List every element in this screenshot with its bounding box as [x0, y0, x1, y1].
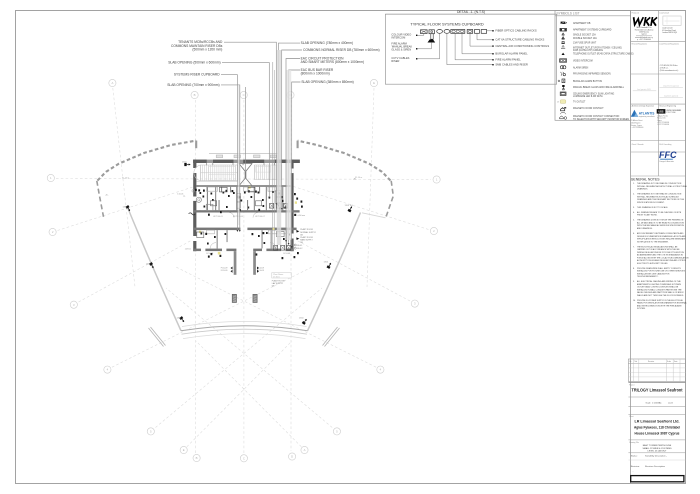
- svg-text:FIBER OPTICS CABLING RACKS: FIBER OPTICS CABLING RACKS: [495, 29, 536, 33]
- svg-text:(800mm x 1000mm): (800mm x 1000mm): [301, 72, 330, 76]
- svg-text:ANY DISCREPANCY BETWEEN CONSUL: ANY DISCREPANCY BETWEEN CONSULTANTS AND: [637, 232, 684, 235]
- svg-text:SLAB OPENING (500mm x 600mm): SLAB OPENING (500mm x 600mm): [168, 61, 220, 65]
- svg-text:THE DRAWING DOES NOT SHOW THE: THE DRAWING DOES NOT SHOW THE FINISHED I…: [637, 219, 684, 222]
- svg-text:LIFT B0.07: LIFT B0.07: [255, 216, 266, 218]
- svg-text:WITH ALL RELEVANT ELECTRICAL S: WITH ALL RELEVANT ELECTRICAL SCHEDULE: [637, 195, 680, 198]
- svg-text:PANEL FOR VENTILATOR MECHANISM: PANEL FOR VENTILATOR MECHANISM FOR EXTER…: [637, 302, 687, 305]
- svg-text:Client / Sharook: Client / Sharook: [632, 143, 644, 146]
- svg-text:GENERAL NOTES: GENERAL NOTES: [631, 177, 660, 181]
- svg-text:INSTALLATIONS LIKE CABLING FOR: INSTALLATIONS LIKE CABLING FOR: [637, 272, 670, 275]
- svg-text:TRILOGY Limassol Seafront: TRILOGY Limassol Seafront: [632, 387, 683, 392]
- svg-text:THE ELECTRICAL INSTALLATIONS S: THE ELECTRICAL INSTALLATIONS SHALL BE: [637, 245, 678, 248]
- svg-text:AS AMENDMENT AND THE CYS EN ST: AS AMENDMENT AND THE CYS EN STANDARDS IN: [637, 254, 683, 257]
- svg-text:C: C: [243, 456, 245, 460]
- svg-text:GLASS & SIREN: GLASS & SIREN: [391, 48, 411, 52]
- svg-text:ALL DIMENSIONS ARE TO BE CHECK: ALL DIMENSIONS ARE TO BE CHECKED ON SITE: [637, 211, 682, 214]
- svg-text:DRAWINGS AND THE RELEVANT SECT: DRAWINGS AND THE RELEVANT SECTIONS OF TH…: [637, 198, 685, 201]
- svg-text:VIDEO INTERCOM: VIDEO INTERCOM: [573, 61, 593, 63]
- svg-text:SLAB OPENING (380mm x 850mm): SLAB OPENING (380mm x 850mm): [301, 80, 353, 84]
- svg-text:Cyprus: Cyprus: [641, 32, 647, 35]
- svg-text:SLAB OPENING (780mm x 400mm): SLAB OPENING (780mm x 400mm): [301, 41, 353, 45]
- svg-text:COMMONS NORMAL RISER DB (780mm: COMMONS NORMAL RISER DB (780mm x 600mm): [303, 48, 379, 52]
- svg-text:A: A: [304, 448, 306, 452]
- svg-text:LR Limassol Seafront Ltd.: LR Limassol Seafront Ltd.: [635, 420, 680, 424]
- svg-text:p. +357 22000000: p. +357 22000000: [637, 39, 651, 41]
- svg-text:LIFT B0.05: LIFT B0.05: [213, 216, 224, 218]
- svg-text:PROVIDE 3G POWER SUPPLY IN THE: PROVIDE 3G POWER SUPPLY IN THE ELECTRICA…: [637, 299, 683, 302]
- svg-text:THE DRAWING IS TO BE READ IN C: THE DRAWING IS TO BE READ IN CONJUNCTION: [637, 182, 682, 185]
- svg-text:BURGLAR ALARM PANEL: BURGLAR ALARM PANEL: [495, 52, 528, 56]
- svg-text:PLANT ROOM: PLANT ROOM: [272, 280, 285, 283]
- svg-text:Architect & Design Supervisor: Architect & Design Supervisor: [632, 105, 655, 108]
- svg-text:OUTLETS AND CONTROL DEVICES SH: OUTLETS AND CONTROL DEVICES SHALL BE: [637, 286, 679, 289]
- svg-text:WALLS AND NOT THROUGH THE FLOO: WALLS AND NOT THROUGH THE FLOOR SCREEDS.: [637, 294, 684, 297]
- svg-text:DB-4.2: DB-4.2: [297, 248, 303, 250]
- svg-text:WKK Limited & Co: WKK Limited & Co: [637, 26, 652, 29]
- svg-text:THE DRAWING IS TO BE READ IN C: THE DRAWING IS TO BE READ IN CONJUNCTION: [637, 193, 682, 196]
- svg-text:PLANT ROOM: PLANT ROOM: [300, 236, 313, 239]
- svg-text:AUTHORITY RULES AND REGULATION: AUTHORITY RULES AND REGULATIONS AND CYPR…: [637, 259, 687, 262]
- svg-text:E: E: [183, 448, 185, 452]
- svg-text:RISER: RISER: [391, 59, 399, 63]
- svg-text:SMB CABLES AND RISER: SMB CABLES AND RISER: [495, 63, 527, 67]
- svg-text:SMALL POWER & SYSTEMS: SMALL POWER & SYSTEMS: [642, 447, 672, 450]
- svg-text:London NW10 8QE: London NW10 8QE: [662, 32, 678, 34]
- svg-text:TV OUTLET: TV OUTLET: [573, 101, 586, 103]
- svg-text:FIRE ALARM PANEL: FIRE ALARM PANEL: [495, 58, 521, 62]
- svg-text:Agias Fylaxeos, 118 Christabel: Agias Fylaxeos, 118 Christabel: [634, 426, 680, 430]
- svg-text:SLAB OPENING (700mm x 900mm): SLAB OPENING (700mm x 900mm): [167, 83, 219, 87]
- svg-text:B: B: [194, 93, 196, 97]
- svg-text:M+E Consulting: M+E Consulting: [659, 143, 671, 146]
- svg-text:Project: Project: [629, 384, 635, 387]
- svg-text:Lead konsult: Lead konsult: [659, 11, 669, 14]
- svg-text:FCU-09: FCU-09: [221, 267, 228, 269]
- svg-text:-5-: -5-: [183, 196, 186, 198]
- svg-text:INTERNET OUTLET (FOR KITCHEN /: INTERNET OUTLET (FOR KITCHEN / CEILING): [573, 47, 622, 49]
- svg-text:TELEPHONE OUTLET (RJ45 CAT6A S: TELEPHONE OUTLET (RJ45 CAT6A STRUCTURE C…: [573, 53, 634, 56]
- svg-text:LUMINAIRE LED 8.4W 347lm: LUMINAIRE LED 8.4W 347lm: [573, 95, 603, 98]
- svg-text:INSTALLED IN WALL CONDUITS PAR: INSTALLED IN WALL CONDUITS PARTITIONS TH…: [637, 288, 682, 291]
- svg-text:Revision Description: Revision Description: [645, 465, 666, 468]
- svg-text:47.36 m: 47.36 m: [273, 276, 280, 278]
- svg-text:RJ45 (CAT6A UTP) CABLING: RJ45 (CAT6A UTP) CABLING: [573, 49, 603, 52]
- svg-text:SYSTEM.: SYSTEM.: [637, 308, 646, 310]
- svg-text:Drawing Title: Drawing Title: [629, 441, 639, 444]
- svg-text:ALL ELECTRICAL CABLING AND WIR: ALL ELECTRICAL CABLING AND WIRING OF THE: [637, 280, 681, 283]
- svg-text:WIRING REGULATIONS BS 7671 200: WIRING REGULATIONS BS 7671 2008 17TH EDI…: [637, 251, 684, 254]
- svg-text:FFC: FFC: [659, 150, 677, 160]
- svg-text:1.49.01: 1.49.01: [185, 248, 191, 250]
- svg-text:DRAWINGS.: DRAWINGS.: [637, 188, 648, 191]
- svg-text:Revision: Revision: [648, 361, 654, 363]
- svg-text:MANUAL BREAK GLASS AND FIRE AL: MANUAL BREAK GLASS AND FIRE ALARM BELL: [573, 86, 625, 89]
- svg-text:(16th amendments etc): (16th amendments etc): [660, 69, 679, 72]
- svg-text:LEVEL 26 LAYOUT: LEVEL 26 LAYOUT: [648, 450, 668, 453]
- svg-text:DETAIL -1- (N.T.S): DETAIL -1- (N.T.S): [457, 10, 485, 14]
- svg-text:PRIOR TO ANY WORK.: PRIOR TO ANY WORK.: [637, 214, 658, 217]
- svg-text:A: A: [111, 81, 113, 85]
- svg-text:-30-: -30-: [105, 195, 109, 197]
- svg-text:UNITED DESIGNERS: UNITED DESIGNERS: [666, 110, 681, 112]
- svg-text:Scale: Scale: [667, 361, 671, 363]
- svg-text:Revision:: Revision:: [631, 466, 640, 468]
- svg-text:final permits 2019: final permits 2019: [637, 88, 650, 91]
- svg-text:WITH ALL RELEVANT ARCHITECTURA: WITH ALL RELEVANT ARCHITECTURAL & STRUCT…: [637, 185, 687, 188]
- svg-text:AND DRAWINGS.: AND DRAWINGS.: [637, 227, 653, 230]
- svg-text:Revised Regulations: Revised Regulations: [632, 43, 648, 46]
- svg-text:ALARM SIREN: ALARM SIREN: [573, 66, 589, 69]
- svg-text:UDS: UDS: [658, 110, 663, 113]
- svg-text:Suitability description -: Suitability description -: [645, 455, 667, 458]
- svg-text:Scale: Scale: [646, 403, 652, 405]
- svg-text:C: C: [243, 93, 245, 97]
- svg-text:1:125@A1: 1:125@A1: [652, 402, 662, 405]
- svg-text:EAST TOWER PENTHOUSE: EAST TOWER PENTHOUSE: [643, 444, 672, 447]
- svg-text:PROVIDE DRAW WIRE IN ALL EMPTY: PROVIDE DRAW WIRE IN ALL EMPTY CONDUITS: [637, 267, 681, 270]
- svg-text:FCU-09: FCU-09: [221, 270, 228, 272]
- svg-text:Lead Revised Regulations: Lead Revised Regulations: [659, 43, 679, 46]
- svg-text:(500mm x 1200 mm): (500mm x 1200 mm): [192, 48, 222, 52]
- svg-text:Nicosia, Cyprus: Nicosia, Cyprus: [631, 125, 642, 127]
- svg-text:13A FUSE SPUR UNIT: 13A FUSE SPUR UNIT: [573, 42, 597, 45]
- svg-text:DOUBLE SOCKET 13A: DOUBLE SOCKET 13A: [573, 37, 597, 40]
- svg-text:E: E: [373, 81, 375, 85]
- svg-text:AND SMART METERS (800mm x 1000: AND SMART METERS (800mm x 1000mm): [301, 60, 364, 64]
- svg-text:SINGLE SOCKET 13A: SINGLE SOCKET 13A: [573, 33, 596, 36]
- svg-text:APARTMENT SYSTEMS CUPBOARD: APARTMENT SYSTEMS CUPBOARD: [573, 29, 612, 32]
- svg-text:≥150 mm: ≥150 mm: [298, 214, 306, 217]
- svg-text:PLANT ROOM: PLANT ROOM: [300, 228, 313, 231]
- svg-text:APARTMENTS LIGHTING POWER AND: APARTMENTS LIGHTING POWER AND SYSTEMS: [637, 283, 682, 286]
- svg-text:SYSTEMS RISER CUPBOARD: SYSTEMS RISER CUPBOARD: [174, 73, 220, 77]
- svg-text:Client: Client: [629, 415, 634, 418]
- svg-text:NORMAL SUPPLY: NORMAL SUPPLY: [300, 231, 317, 234]
- svg-text:31.10 m: 31.10 m: [122, 177, 130, 179]
- svg-text:APARTMENT DB: APARTMENT DB: [573, 22, 591, 25]
- svg-text:LAV SUPPLY: LAV SUPPLY: [272, 282, 284, 285]
- svg-text:D: D: [291, 455, 293, 459]
- svg-text:Structural Engineering: Structural Engineering: [659, 105, 676, 108]
- svg-text:TO SELECTION WITH SECURITY MON: TO SELECTION WITH SECURITY MONITOR SCREE…: [573, 119, 629, 121]
- svg-text:House Limassol 3087 Cyprus: House Limassol 3087 Cyprus: [635, 431, 680, 435]
- svg-text:THIS DRAWING IS NOT TO SCALE.: THIS DRAWING IS NOT TO SCALE.: [637, 206, 668, 209]
- svg-text:TYPICAL FLOOR SYSTEMS CUPBOARD: TYPICAL FLOOR SYSTEMS CUPBOARD: [410, 21, 484, 26]
- svg-text:CAT 6A STRUCTURE CABLING RACKS: CAT 6A STRUCTURE CABLING RACKS: [495, 38, 544, 42]
- svg-text:f. +357 22 000000: f. +357 22 000000: [657, 124, 669, 126]
- svg-text:ELECTRICITY AUTHORITY RULES.: ELECTRICITY AUTHORITY RULES.: [637, 262, 668, 265]
- svg-text:SPECIFICATIONS DOCUMENT.: SPECIFICATIONS DOCUMENT.: [637, 201, 665, 204]
- svg-text:Status:: Status:: [631, 455, 638, 458]
- svg-text:FALSE CEILINGS AND PARTITION W: FALSE CEILINGS AND PARTITION WALLS OR BR…: [637, 291, 684, 294]
- svg-text:CEILING EMERGENCY SLIM LIGHTIN: CEILING EMERGENCY SLIM LIGHTING: [573, 94, 614, 96]
- svg-text:INTERCOM: INTERCOM: [391, 36, 405, 40]
- svg-text:WITH THE MECHANICAL SERVICES S: WITH THE MECHANICAL SERVICES SPECIFICATI…: [637, 224, 685, 227]
- svg-text:Produced: Produced: [632, 11, 639, 14]
- svg-text:department approval: department approval: [663, 84, 679, 87]
- svg-text:No: No: [629, 361, 631, 363]
- svg-text:ATLANTIS: ATLANTIS: [639, 112, 655, 116]
- svg-text:2404 Engomi: 2404 Engomi: [631, 122, 641, 124]
- svg-text:PIR (PASSIVE INFRARED SENSOR): PIR (PASSIVE INFRARED SENSOR): [573, 72, 611, 75]
- svg-text:-30-: -30-: [353, 179, 357, 181]
- svg-text:CARRIED OUT IN ACCORDANCE WITH: CARRIED OUT IN ACCORDANCE WITH THE IEE: [637, 248, 680, 251]
- svg-text:BURGLAR ALARM BUTTON: BURGLAR ALARM BUTTON: [573, 80, 602, 83]
- svg-text:MAGNETIC DOOR CONTACT CONNECTI: MAGNETIC DOOR CONTACT CONNECTION: [573, 115, 620, 118]
- svg-text:NOTIFICATION TO THE ENGINEER.: NOTIFICATION TO THE ENGINEER.: [637, 240, 669, 243]
- svg-text:FCU-08: FCU-08: [284, 253, 291, 255]
- svg-text:10.: 10.: [633, 300, 636, 302]
- svg-text:DESIGN DOCUMENTATION DRAWINGS: DESIGN DOCUMENTATION DRAWINGS LAYOUTS AN…: [637, 235, 686, 238]
- svg-text:CENTRAL AIR CONDITIONING CONTR: CENTRAL AIR CONDITIONING CONTROLS: [495, 44, 549, 48]
- svg-text:INSTALLED FOR FUTURE USE OR OT: INSTALLED FOR FUTURE USE OR OTHER SERVIC…: [637, 270, 686, 273]
- svg-text:MAIN SUPPLY: MAIN SUPPLY: [300, 238, 313, 241]
- svg-text:ALL DETAILS AND IS TO BE READ: ALL DETAILS AND IS TO BE READ IN CONJUNC…: [637, 221, 685, 224]
- svg-text:B: B: [196, 456, 198, 460]
- svg-text:DB-4.1: DB-4.1: [297, 245, 303, 247]
- svg-text:Nicosia 1105: Nicosia 1105: [657, 118, 666, 120]
- svg-text:regulation approval: regulation approval: [664, 94, 679, 97]
- svg-text:MAGNETIC DOOR CONTACT: MAGNETIC DOOR CONTACT: [573, 107, 604, 110]
- svg-text:SPECIFICATION RESOLUTIONS REQU: SPECIFICATION RESOLUTIONS REQUIRE IMMEDI…: [637, 238, 686, 241]
- svg-text:SYMBOLS LIST: SYMBOLS LIST: [557, 12, 580, 16]
- svg-text:TELEPHONE/DATA ETC.: TELEPHONE/DATA ETC.: [637, 275, 659, 278]
- svg-text:FORCE ALONG WITH THE LOCAL TEL: FORCE ALONG WITH THE LOCAL TELECOMMUNICA…: [637, 256, 689, 259]
- svg-text:AND INTERCONNECTION WITH THE F: AND INTERCONNECTION WITH THE FIRE ALARM: [637, 304, 682, 307]
- svg-text:Level: Level: [668, 403, 673, 405]
